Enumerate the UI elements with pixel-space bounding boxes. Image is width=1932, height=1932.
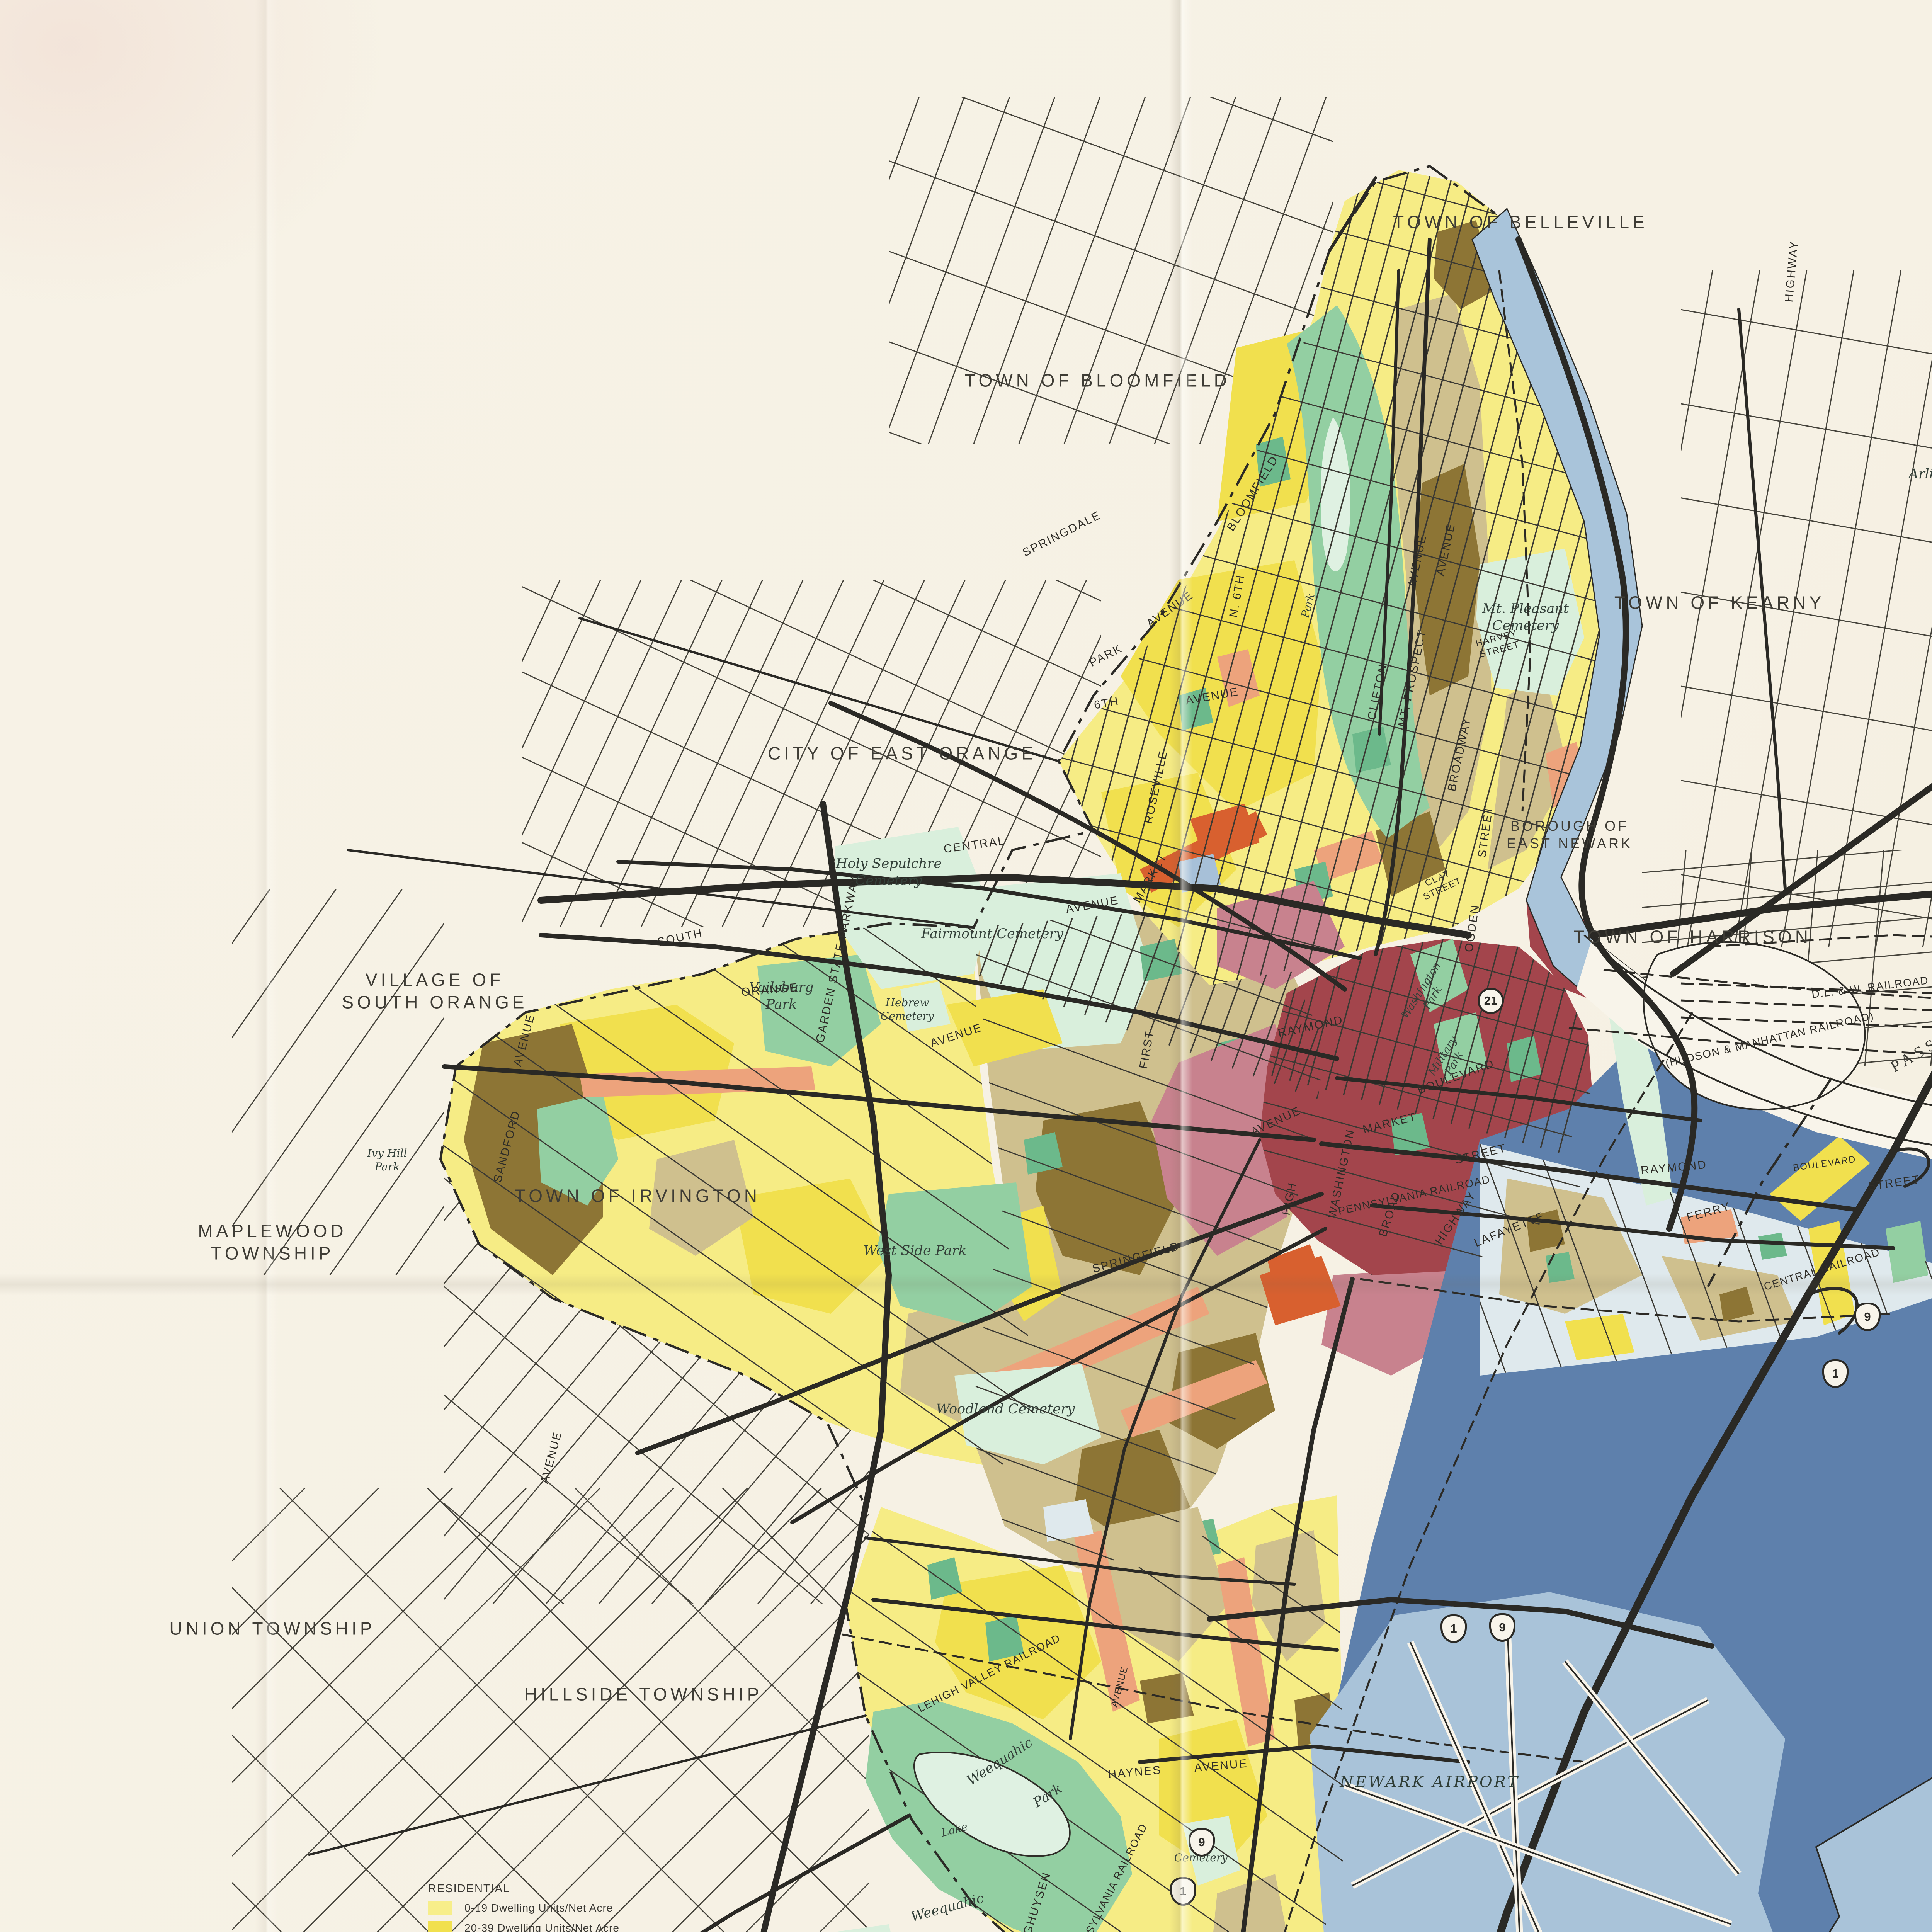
- map-label: NEWARK AIRPORT: [1340, 1772, 1520, 1792]
- land-use-map-canvas: [0, 0, 1932, 1932]
- route-shield: 21: [1478, 988, 1504, 1014]
- map-label: MAPLEWOOD TOWNSHIP: [198, 1220, 347, 1265]
- map-label: CITY OF EAST ORANGE: [768, 742, 1037, 765]
- map-label: BOROUGH OF EAST NEWARK: [1507, 817, 1633, 852]
- map-label: Hebrew Cemetery: [881, 996, 934, 1023]
- legend-swatch: [428, 1921, 452, 1932]
- map-label: Arlington Cemetery: [1909, 466, 1932, 483]
- map-label: VILLAGE OF SOUTH ORANGE: [342, 969, 527, 1014]
- map-label: HILLSIDE TOWNSHIP: [524, 1683, 763, 1706]
- legend-swatch: [428, 1901, 452, 1915]
- map-label: Mt. Pleasant Cemetery: [1482, 600, 1569, 634]
- map-label: Ivy Hill Park: [367, 1146, 407, 1173]
- map-label: TOWN OF IRVINGTON: [515, 1185, 760, 1207]
- legend-item-label: 0-19 Dwelling Units/Net Acre: [464, 1902, 613, 1914]
- legend-item: 20-39 Dwelling Units/Net Acre: [428, 1921, 623, 1932]
- map-label: West Side Park: [863, 1243, 966, 1260]
- map-label: Woodland Cemetery: [936, 1401, 1075, 1418]
- map-label: TOWN OF KEARNY: [1614, 592, 1825, 614]
- legend-section-title: RESIDENTIAL: [428, 1883, 623, 1895]
- map-label: UNION TOWNSHIP: [169, 1617, 375, 1640]
- map-legend: RESIDENTIAL0-19 Dwelling Units/Net Acre2…: [428, 1869, 623, 1932]
- map-label: TOWN OF BLOOMFIELD: [964, 369, 1230, 392]
- map-label: TOWN OF BELLEVILLE: [1393, 211, 1648, 233]
- map-label: TOWN OF HARRISON: [1573, 926, 1811, 948]
- legend-item-label: 20-39 Dwelling Units/Net Acre: [464, 1922, 619, 1932]
- map-label: Fairmount Cemetery: [921, 926, 1063, 943]
- map-sheet: TOWN OF BELLEVILLETOWN OF BLOOMFIELDTOWN…: [0, 0, 1932, 1932]
- legend-item: 0-19 Dwelling Units/Net Acre: [428, 1901, 623, 1915]
